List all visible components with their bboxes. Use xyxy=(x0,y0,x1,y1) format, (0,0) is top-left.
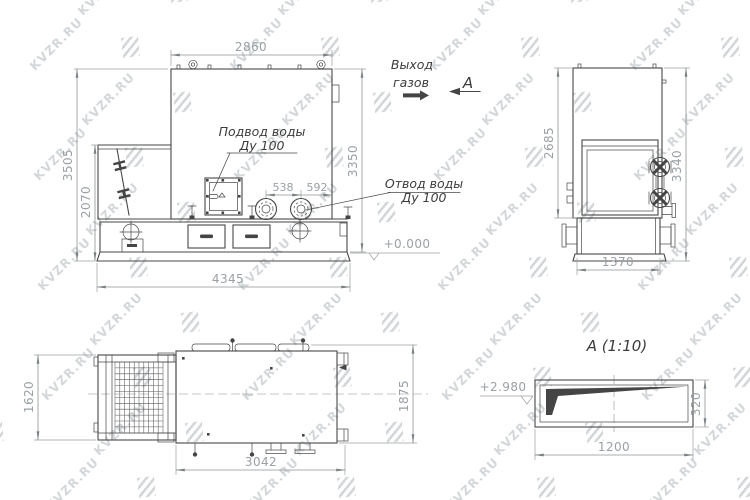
flue-bracket xyxy=(332,85,339,102)
valve-handwheel-upper xyxy=(649,158,671,177)
dim-height-overall-rear: 3340 xyxy=(670,150,684,182)
eyebolt-icon xyxy=(317,60,325,68)
dim-width-right: 1875 xyxy=(397,380,411,412)
top-bolts xyxy=(177,60,325,69)
dim-port-to-edge: 592 xyxy=(307,181,328,194)
section-a-view: А (1:10) +2.980 1200 320 xyxy=(480,337,709,460)
grate-mesh xyxy=(115,362,163,433)
flow-arrow-icon xyxy=(403,90,429,100)
gas-outlet-label: Выход газов xyxy=(391,57,433,100)
dim-section-length: 1200 xyxy=(598,440,630,454)
technical-drawing: 2860 3505 2070 3350 4345 538 592 xyxy=(0,0,750,500)
dim-length-bottom: 3042 xyxy=(245,455,277,469)
svg-text:+2.980: +2.980 xyxy=(480,380,527,394)
dim-width-top: 2860 xyxy=(235,40,267,54)
dim-port-spacing: 538 xyxy=(273,181,294,194)
top-lids xyxy=(192,338,309,351)
base-frame xyxy=(100,220,347,252)
svg-text:Выход: Выход xyxy=(391,57,433,72)
svg-text:газов: газов xyxy=(393,75,429,90)
hinge-icon xyxy=(117,188,131,199)
drawing-sheet: KVZR.RUKVZR.RUKVZR.RUKVZR.RUKVZR.RUKVZR.… xyxy=(0,0,750,500)
water-inlet-port xyxy=(256,199,277,220)
level-mark-zero: +0.000 xyxy=(350,237,440,260)
svg-text:Подвод воды: Подвод воды xyxy=(219,124,306,139)
valve-handwheel-lower xyxy=(649,189,671,208)
dim-height-body: 2685 xyxy=(542,127,556,159)
fuel-hopper xyxy=(98,145,171,219)
svg-text:Отвод воды: Отвод воды xyxy=(385,176,463,191)
access-door xyxy=(205,178,242,215)
plan-view: 1620 3042 1875 xyxy=(22,338,428,475)
dim-width-base-rear: 1370 xyxy=(602,255,634,269)
dim-width-base: 4345 xyxy=(212,272,244,286)
side-view: 2685 3340 1370 xyxy=(542,64,690,275)
water-outlet-label: Отвод воды Ду 100 xyxy=(306,176,463,210)
dim-height-hopper: 2070 xyxy=(79,186,93,218)
dim-height-right: 3350 xyxy=(346,145,360,177)
svg-text:Ду 100: Ду 100 xyxy=(239,138,285,153)
eyebolt-icon xyxy=(189,60,197,68)
section-title: А (1:10) xyxy=(586,337,647,355)
side-pipe-right xyxy=(660,227,671,244)
right-brackets xyxy=(337,353,348,441)
dim-width-left: 1620 xyxy=(22,381,36,413)
level-mark-section: +2.980 xyxy=(480,380,533,404)
boiler-body-plan xyxy=(176,351,337,443)
door-handle xyxy=(209,195,218,199)
foundation-plate xyxy=(97,252,350,261)
section-letter: А xyxy=(462,74,473,92)
dim-height-overall: 3505 xyxy=(61,149,75,181)
section-view-arrow: А xyxy=(449,74,480,95)
water-outlet-port xyxy=(291,199,312,220)
drain-pipe-right xyxy=(662,204,676,218)
side-pipe-left xyxy=(566,227,577,244)
door-latch xyxy=(219,193,225,197)
grate-assembly xyxy=(94,353,176,442)
base-frame-rear xyxy=(562,218,675,254)
hinge-icon xyxy=(113,160,127,171)
damper-wedge xyxy=(546,387,688,416)
svg-text:+0.000: +0.000 xyxy=(384,237,431,251)
dim-section-height: 320 xyxy=(689,392,703,416)
rear-door xyxy=(567,140,658,215)
front-view: 2860 3505 2070 3350 4345 538 592 xyxy=(61,40,480,292)
